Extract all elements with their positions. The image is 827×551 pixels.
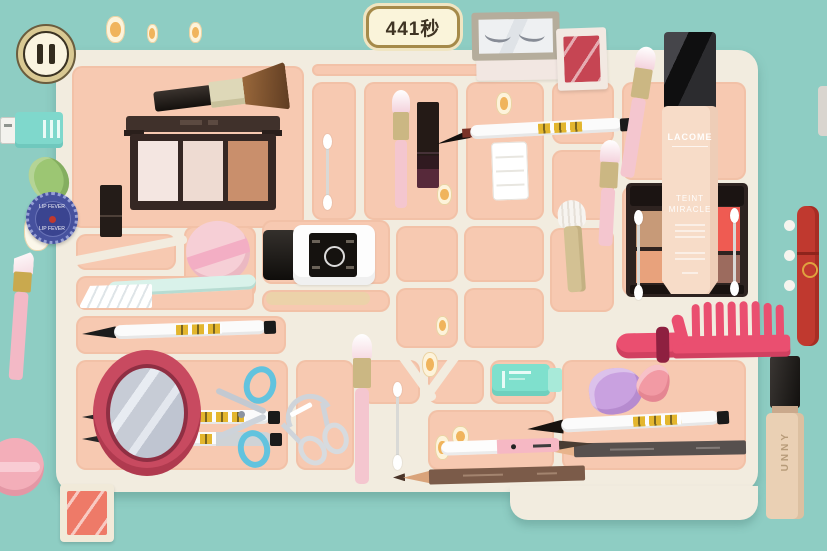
spatula-stick[interactable] (266, 292, 370, 305)
lip-tin-label: LIP FEVER (32, 226, 71, 231)
partial-item-edge (818, 86, 827, 136)
cotton-swab[interactable] (632, 210, 644, 300)
nail-tip[interactable] (189, 22, 202, 43)
timer-text: 441秒 (386, 14, 441, 41)
blush-compact-red[interactable] (556, 27, 608, 91)
tissue[interactable] (491, 141, 529, 200)
lip-gloss-tube[interactable] (797, 206, 819, 346)
false-eyelash (518, 26, 545, 43)
lipstick-small-dark[interactable] (100, 185, 122, 237)
comb[interactable] (615, 296, 792, 363)
timer-badge: 441秒 (366, 6, 460, 48)
powder-puff-round[interactable] (0, 438, 44, 496)
contour-palette[interactable] (124, 116, 282, 210)
cotton-swab[interactable] (392, 382, 402, 470)
foundation-line-text: MIRACLE (662, 205, 718, 214)
tray-cell (464, 226, 544, 282)
blush-compact-coral[interactable] (60, 484, 114, 542)
pause-icon (49, 44, 55, 64)
false-eyelash (484, 26, 511, 43)
lip-tin-label: LIP FEVER (32, 204, 71, 209)
yellow-bead[interactable] (422, 352, 438, 377)
tray-cell (464, 288, 544, 348)
foundation-bottle[interactable]: LACOME TEINT MIRACLE (660, 32, 720, 294)
pause-button[interactable] (16, 24, 76, 84)
tan-powder-brush[interactable] (555, 199, 594, 297)
lipstick-dark[interactable] (417, 102, 439, 188)
false-eyelashes-box[interactable] (469, 11, 570, 87)
concealer-brand-text: UNNY (780, 431, 791, 471)
cushion-bottle[interactable] (263, 225, 375, 285)
pause-icon (37, 44, 43, 64)
game-screen: { "hud": { "timer": "441秒", "pause_icon"… (0, 0, 827, 551)
white-dot (784, 280, 795, 291)
lip-balm-tin[interactable]: LIP FEVER LIP FEVER (26, 192, 78, 244)
white-dot (784, 250, 795, 261)
cotton-swab[interactable] (322, 134, 332, 210)
yellow-bead[interactable] (496, 92, 512, 115)
tray-cell (396, 288, 458, 348)
pink-makeup-brush[interactable] (350, 334, 374, 488)
foundation-brand-text: LACOME (662, 132, 718, 142)
mint-tube[interactable] (492, 364, 564, 398)
white-dot (784, 220, 795, 231)
foundation-line-text: TEINT (662, 194, 718, 203)
nail-tip[interactable] (106, 16, 125, 43)
nail-tip[interactable] (147, 24, 158, 43)
hand-mirror[interactable] (93, 350, 201, 476)
tray-cell (396, 226, 458, 282)
pink-makeup-brush[interactable] (390, 90, 412, 210)
cotton-swab[interactable] (728, 208, 740, 296)
tray-cell (312, 82, 356, 220)
razor[interactable] (80, 276, 258, 312)
makeup-tray-lower-tab (510, 486, 758, 520)
concealer-unny[interactable]: UNNY (764, 356, 806, 518)
yellow-bead[interactable] (436, 316, 449, 336)
yellow-bead[interactable] (437, 184, 452, 205)
pink-makeup-brush[interactable] (3, 249, 38, 382)
